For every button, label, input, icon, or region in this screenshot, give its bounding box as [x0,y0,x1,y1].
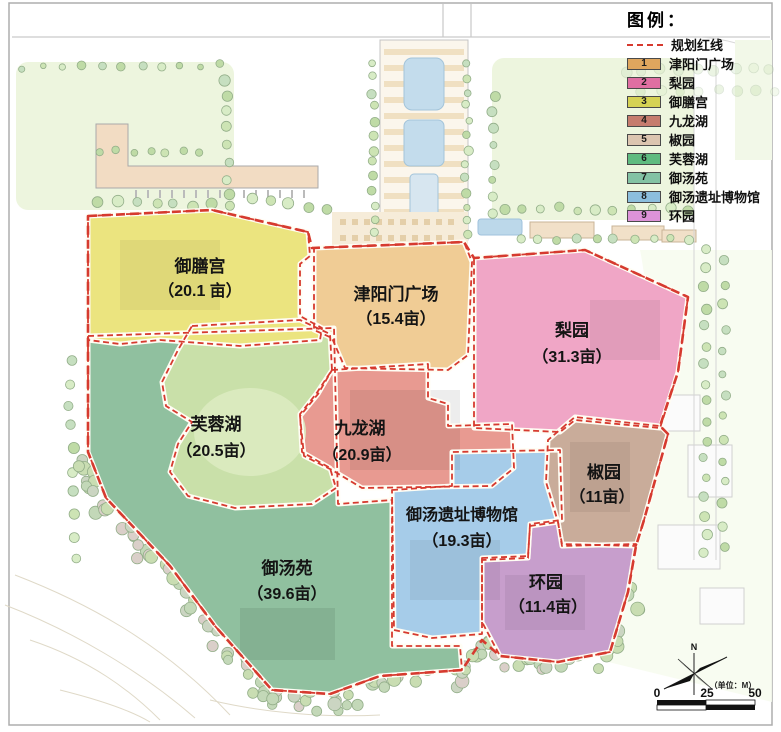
legend-swatch-5: 5 [627,134,661,146]
label-yushangong: 御膳宫 [174,256,226,276]
pond-icon [404,58,444,110]
label-jiulonghu: 九龙湖 [334,418,386,438]
label-huanyuan-area: （11.4亩） [509,597,587,616]
legend-item-6: 6 芙蓉湖 [627,152,779,165]
legend-label-6: 芙蓉湖 [669,149,708,168]
label-yushangong-area: （20.1 亩） [158,281,242,300]
pond-icon [478,219,522,235]
legend-label-4: 九龙湖 [669,111,708,130]
legend-item-7: 7 御汤苑 [627,171,779,184]
planning-map-page: 御膳宫 （20.1 亩） 津阳门广场 （15.4亩） 梨园 （31.3亩） 芙蓉… [0,0,781,732]
legend-label-8: 御汤遗址博物馆 [669,187,760,206]
legend-num-7: 7 [641,173,647,183]
label-jinyangmen: 津阳门广场 [354,284,439,304]
legend-swatch-3: 3 [627,96,661,108]
legend-swatch-1: 1 [627,58,661,70]
legend-num-8: 8 [641,192,647,202]
legend-label-1: 津阳门广场 [669,54,734,73]
label-yutangyuan-area: （39.6亩） [247,584,326,603]
legend-label-5: 椒园 [669,130,695,149]
scale-tick-50: 50 [748,686,762,700]
legend-label-2: 梨园 [669,73,695,92]
scale-tick-25: 25 [700,686,714,700]
label-yutangyuan: 御汤苑 [261,558,313,578]
legend: 图例： 规划红线 1 津阳门广场 2 梨园 3 御膳宫 4 九龙湖 5 椒园 6… [627,6,779,222]
label-jiaoyuan: 椒园 [587,462,621,482]
legend-label-7: 御汤苑 [669,168,708,187]
label-liyuan-area: （31.3亩） [532,347,611,366]
legend-num-3: 3 [641,97,647,107]
label-furonghu: 芙蓉湖 [191,414,242,434]
red-line-label: 规划红线 [671,35,723,54]
legend-swatch-8: 8 [627,191,661,203]
legend-num-1: 1 [641,59,647,69]
legend-item-4: 4 九龙湖 [627,114,779,127]
legend-title: 图例： [627,6,779,31]
legend-num-5: 5 [641,135,647,145]
label-jiulonghu-area: （20.9亩） [322,445,401,464]
legend-item-1: 1 津阳门广场 [627,57,779,70]
label-museum: 御汤遗址博物馆 [405,505,518,524]
legend-item-5: 5 椒园 [627,133,779,146]
legend-swatch-2: 2 [627,77,661,89]
red-dashed-line-swatch [627,44,663,46]
legend-item-8: 8 御汤遗址博物馆 [627,190,779,203]
label-huanyuan: 环园 [529,573,563,592]
label-jiaoyuan-area: （11亩） [570,487,635,506]
label-liyuan: 梨园 [554,320,589,340]
legend-num-6: 6 [641,154,647,164]
legend-red-line-row: 规划红线 [627,38,779,51]
entrance-boulevard [380,40,468,240]
scale-tick-0: 0 [654,686,661,700]
legend-swatch-4: 4 [627,115,661,127]
legend-label-9: 环园 [669,206,695,225]
context-buildings-row [478,219,696,242]
legend-item-3: 3 御膳宫 [627,95,779,108]
legend-num-9: 9 [641,211,647,221]
legend-swatch-6: 6 [627,153,661,165]
label-furonghu-area: （20.5亩） [176,441,255,460]
label-jinyangmen-area: （15.4亩） [356,309,435,328]
legend-swatch-9: 9 [627,210,661,222]
legend-item-9: 9 环园 [627,209,779,222]
label-museum-area: （19.3亩） [422,531,501,550]
legend-num-2: 2 [641,78,647,88]
legend-num-4: 4 [641,116,647,126]
north-label: N [691,642,698,652]
legend-item-2: 2 梨园 [627,76,779,89]
legend-swatch-7: 7 [627,172,661,184]
legend-label-3: 御膳宫 [669,92,708,111]
